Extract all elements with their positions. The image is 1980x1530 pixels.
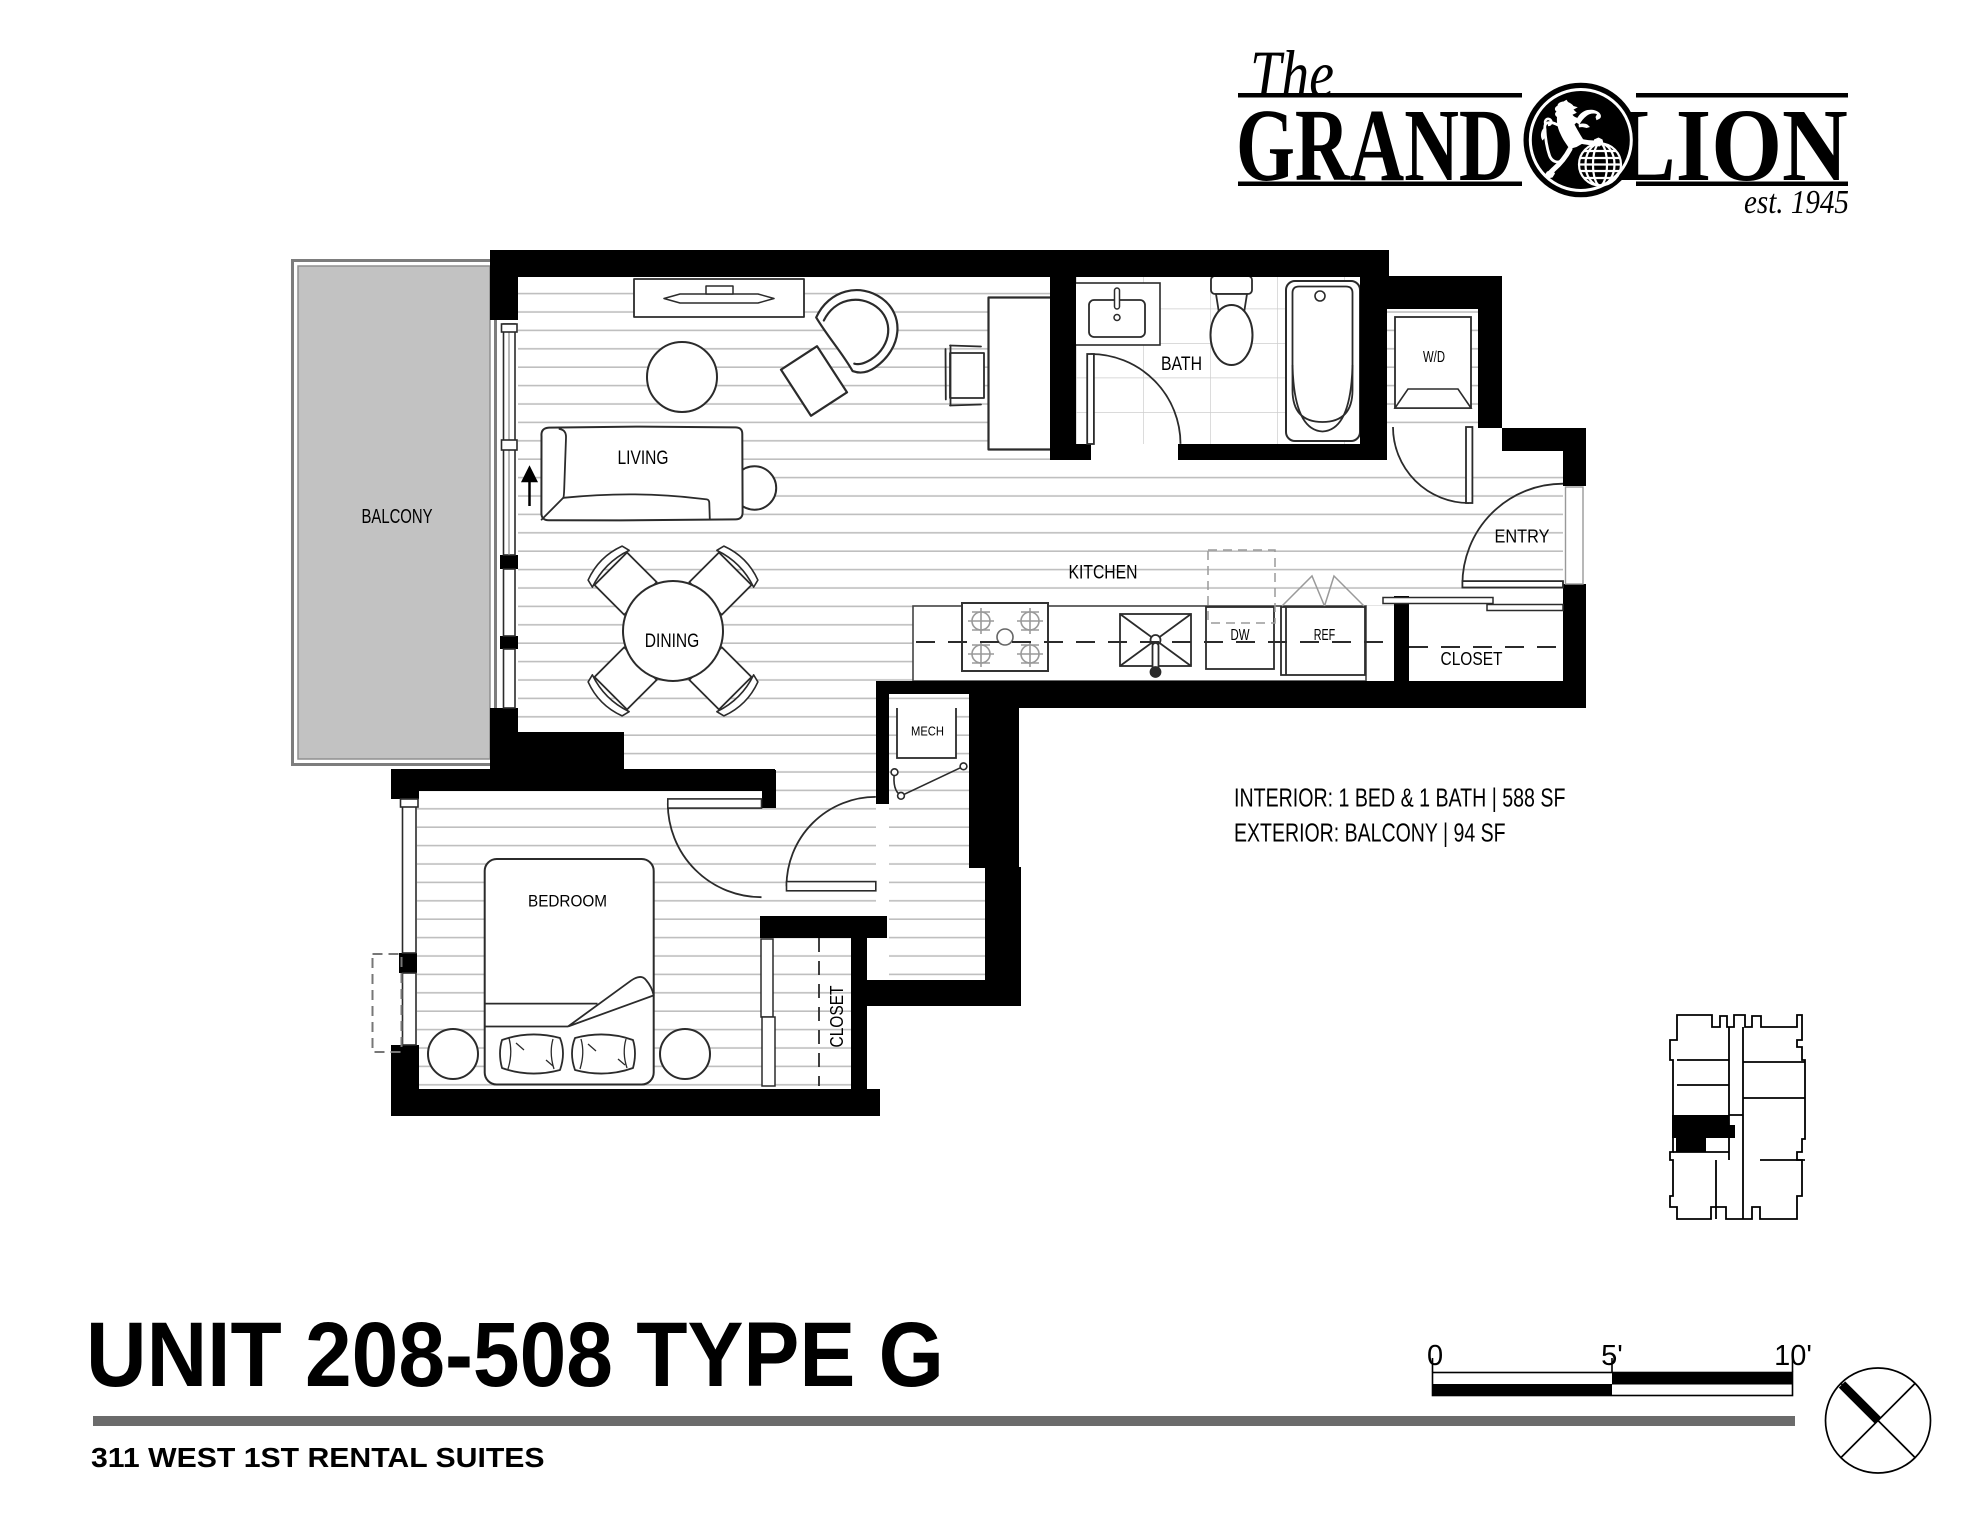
svg-text:REF: REF (1314, 627, 1336, 644)
svg-text:est. 1945: est. 1945 (1744, 183, 1849, 221)
svg-text:311 WEST 1ST RENTAL SUITES: 311 WEST 1ST RENTAL SUITES (91, 1443, 545, 1474)
svg-text:W/D: W/D (1423, 349, 1445, 366)
svg-text:The: The (1250, 37, 1334, 112)
svg-text:MECH: MECH (911, 725, 944, 739)
svg-text:0: 0 (1427, 1340, 1443, 1372)
svg-text:EXTERIOR: BALCONY | 94 SF: EXTERIOR: BALCONY | 94 SF (1234, 818, 1506, 847)
svg-text:BEDROOM: BEDROOM (528, 893, 607, 911)
svg-text:INTERIOR: 1 BED & 1 BATH | 58: INTERIOR: 1 BED & 1 BATH | 588 SF (1234, 783, 1565, 812)
svg-text:CLOSET: CLOSET (1441, 649, 1503, 669)
svg-text:ENTRY: ENTRY (1495, 526, 1550, 547)
svg-text:DW: DW (1231, 627, 1250, 644)
svg-text:BATH: BATH (1161, 353, 1202, 375)
svg-text:BALCONY: BALCONY (362, 506, 433, 528)
svg-text:CLOSET: CLOSET (826, 986, 847, 1048)
svg-text:KITCHEN: KITCHEN (1069, 562, 1138, 584)
svg-text:DINING: DINING (645, 631, 700, 652)
svg-text:LIVING: LIVING (618, 448, 669, 469)
svg-text:UNIT 208-508 TYPE G: UNIT 208-508 TYPE G (86, 1302, 944, 1405)
